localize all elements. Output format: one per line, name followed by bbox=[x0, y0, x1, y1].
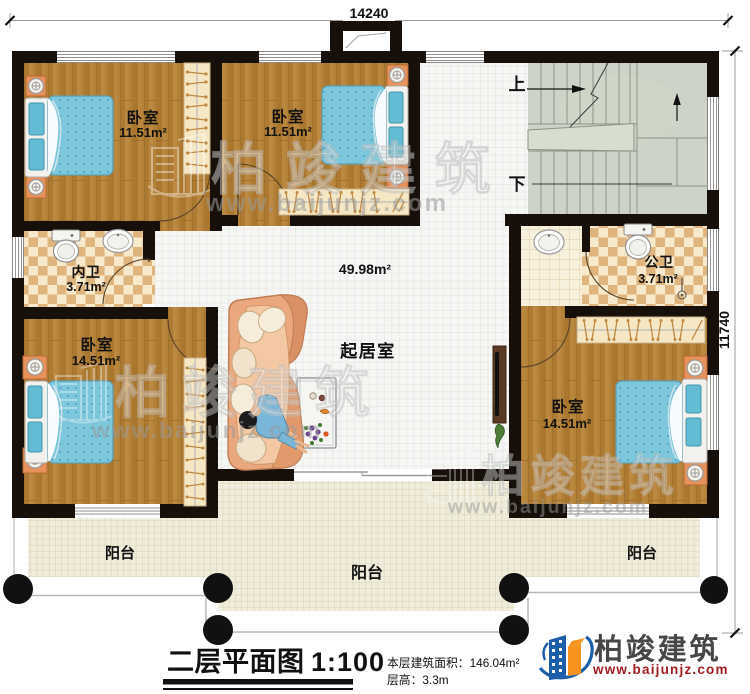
svg-text:14.51m²: 14.51m² bbox=[72, 353, 121, 368]
svg-text:www.baijunjz.com: www.baijunjz.com bbox=[91, 417, 323, 443]
svg-text:内卫: 内卫 bbox=[72, 264, 101, 280]
svg-text:柏竣建筑: 柏竣建筑 bbox=[115, 362, 381, 424]
svg-text:www.baijunjz.com: www.baijunjz.com bbox=[447, 496, 648, 518]
svg-text:14240: 14240 bbox=[350, 5, 389, 21]
svg-text:二层平面图: 二层平面图 bbox=[167, 647, 305, 677]
svg-text:3.71m²: 3.71m² bbox=[638, 272, 678, 286]
svg-text:11740: 11740 bbox=[716, 311, 732, 349]
svg-text:卧室: 卧室 bbox=[551, 397, 584, 416]
svg-text:3.71m²: 3.71m² bbox=[66, 280, 106, 294]
svg-text:柏竣建筑: 柏竣建筑 bbox=[481, 452, 679, 501]
svg-text:阳台: 阳台 bbox=[627, 544, 657, 562]
svg-text:1:100: 1:100 bbox=[311, 647, 385, 677]
svg-text:14.51m²: 14.51m² bbox=[543, 416, 592, 431]
svg-text:卧室: 卧室 bbox=[80, 335, 113, 354]
svg-text:阳台: 阳台 bbox=[351, 563, 383, 582]
svg-text:上: 上 bbox=[509, 75, 526, 94]
svg-text:49.98m²: 49.98m² bbox=[339, 261, 391, 277]
svg-text:柏竣建筑: 柏竣建筑 bbox=[594, 632, 721, 666]
svg-text:公卫: 公卫 bbox=[645, 254, 674, 270]
svg-text:起居室: 起居室 bbox=[339, 341, 396, 361]
svg-text:本层建筑面积：146.04m²: 本层建筑面积：146.04m² bbox=[387, 656, 519, 670]
svg-text:www.baijunjz.com: www.baijunjz.com bbox=[205, 190, 448, 217]
svg-text:阳台: 阳台 bbox=[105, 544, 135, 562]
svg-text:www.baijunjz.com: www.baijunjz.com bbox=[592, 662, 729, 677]
svg-text:11.51m²: 11.51m² bbox=[119, 125, 167, 140]
svg-text:下: 下 bbox=[509, 175, 526, 194]
svg-text:层高：3.3m: 层高：3.3m bbox=[387, 673, 449, 687]
svg-text:11.51m²: 11.51m² bbox=[264, 124, 312, 139]
